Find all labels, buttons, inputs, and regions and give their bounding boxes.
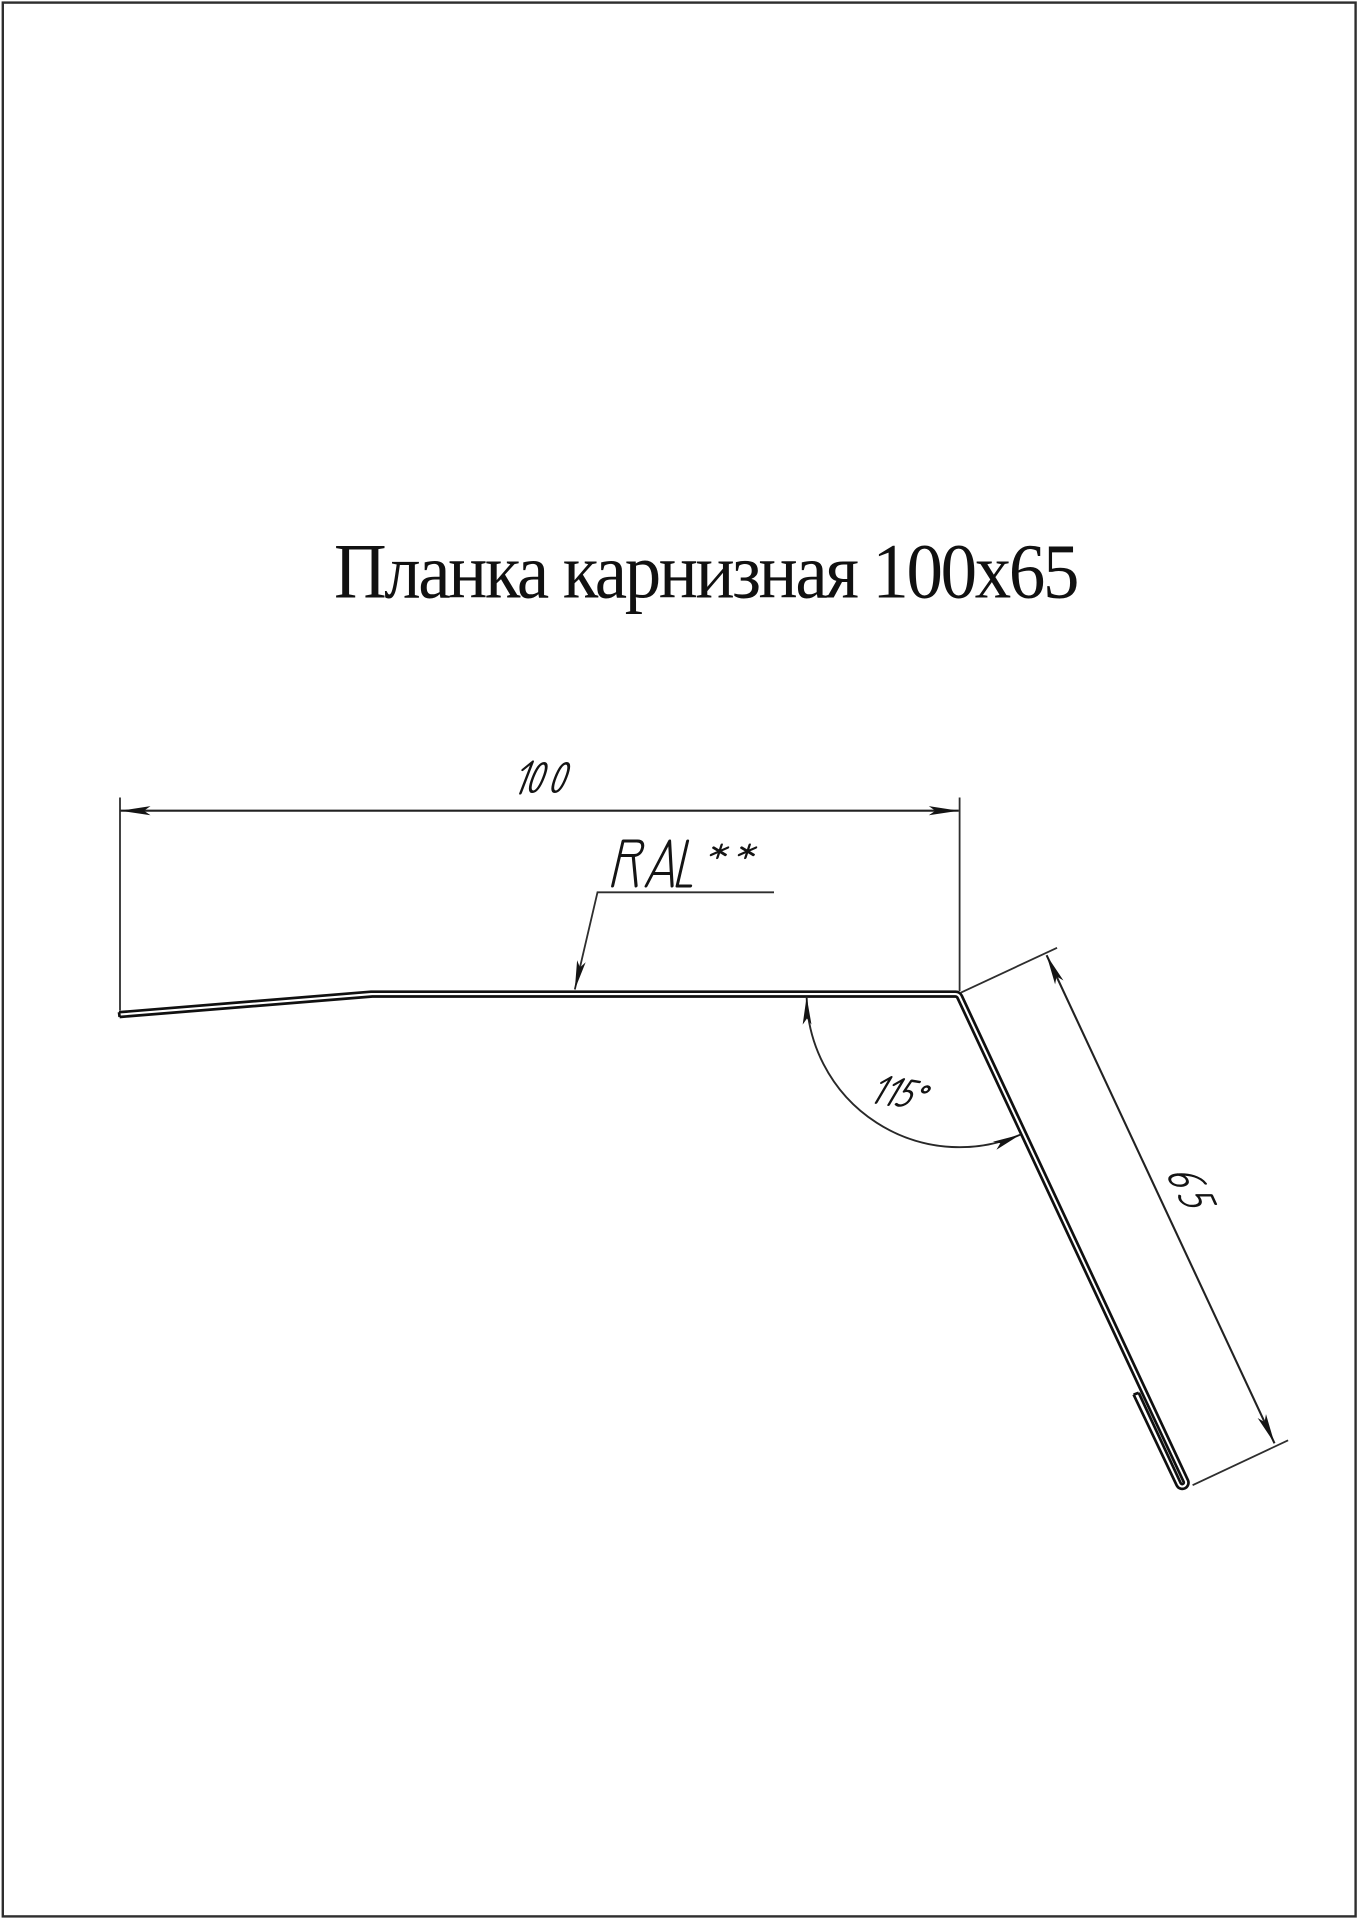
svg-text:Планка карнизная 100х65: Планка карнизная 100х65 xyxy=(334,529,1077,615)
